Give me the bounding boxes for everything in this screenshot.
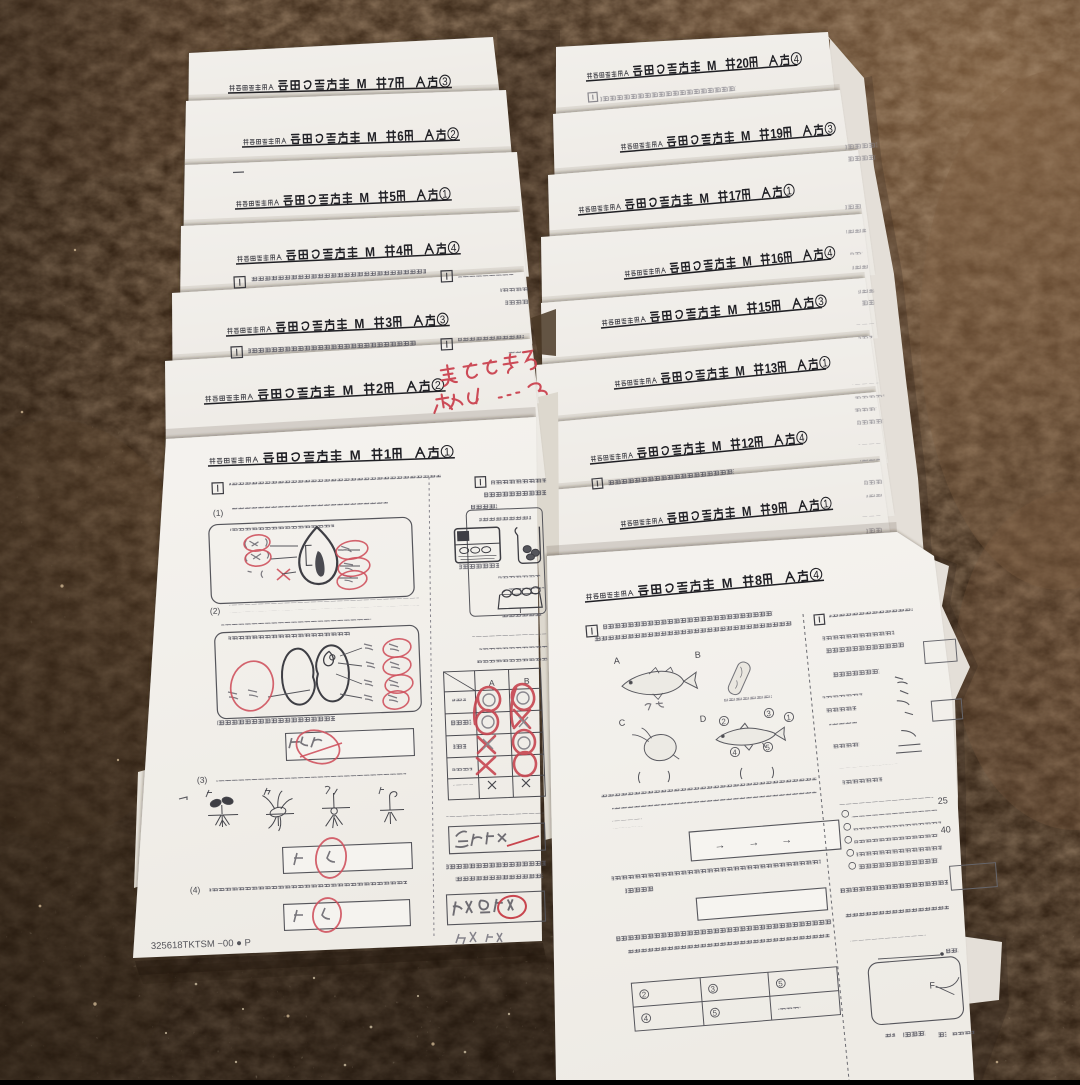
svg-text:→: → <box>748 836 760 849</box>
svg-text:2: 2 <box>435 380 442 393</box>
svg-text:1: 1 <box>442 189 448 201</box>
svg-text:16: 16 <box>770 250 784 266</box>
svg-text:2: 2 <box>376 381 384 397</box>
svg-text:M: M <box>707 58 718 74</box>
svg-text:(4): (4) <box>190 885 201 895</box>
svg-text:5: 5 <box>389 189 396 204</box>
svg-text:M: M <box>741 504 752 520</box>
svg-text:(3): (3) <box>197 775 208 785</box>
svg-text:40: 40 <box>940 824 951 835</box>
svg-text:→: → <box>714 839 726 852</box>
svg-text:25: 25 <box>937 795 948 806</box>
svg-text:3: 3 <box>440 314 446 327</box>
svg-text:1: 1 <box>444 446 450 458</box>
svg-text:M: M <box>342 382 354 398</box>
svg-text:B: B <box>694 650 701 660</box>
svg-text:M: M <box>721 575 733 591</box>
svg-text:M: M <box>699 190 710 206</box>
svg-text:(1): (1) <box>213 508 224 518</box>
svg-text:15: 15 <box>757 299 771 315</box>
svg-text:M: M <box>367 130 377 145</box>
svg-text:A: A <box>613 656 620 666</box>
svg-text:13: 13 <box>764 360 778 376</box>
svg-text:3: 3 <box>385 314 392 330</box>
svg-text:M: M <box>365 244 376 260</box>
svg-text:(2): (2) <box>210 606 221 616</box>
svg-text:19: 19 <box>770 126 784 142</box>
svg-text:M: M <box>711 438 722 454</box>
svg-text:M: M <box>354 315 365 331</box>
svg-text:4: 4 <box>451 242 457 255</box>
svg-text:1: 1 <box>384 446 392 461</box>
svg-text:6: 6 <box>397 129 404 144</box>
svg-text:20: 20 <box>736 55 750 71</box>
svg-text:4: 4 <box>813 569 820 582</box>
svg-text:M: M <box>349 447 360 463</box>
svg-text:M: M <box>742 253 753 269</box>
svg-text:M: M <box>727 302 738 318</box>
svg-text:M: M <box>735 363 746 379</box>
svg-text:8: 8 <box>754 572 762 588</box>
svg-text:M: M <box>359 190 369 205</box>
svg-text:17: 17 <box>728 188 742 204</box>
svg-text:2: 2 <box>450 129 456 141</box>
svg-text:12: 12 <box>741 435 755 451</box>
svg-text:M: M <box>740 128 751 144</box>
svg-text:→: → <box>781 834 793 847</box>
